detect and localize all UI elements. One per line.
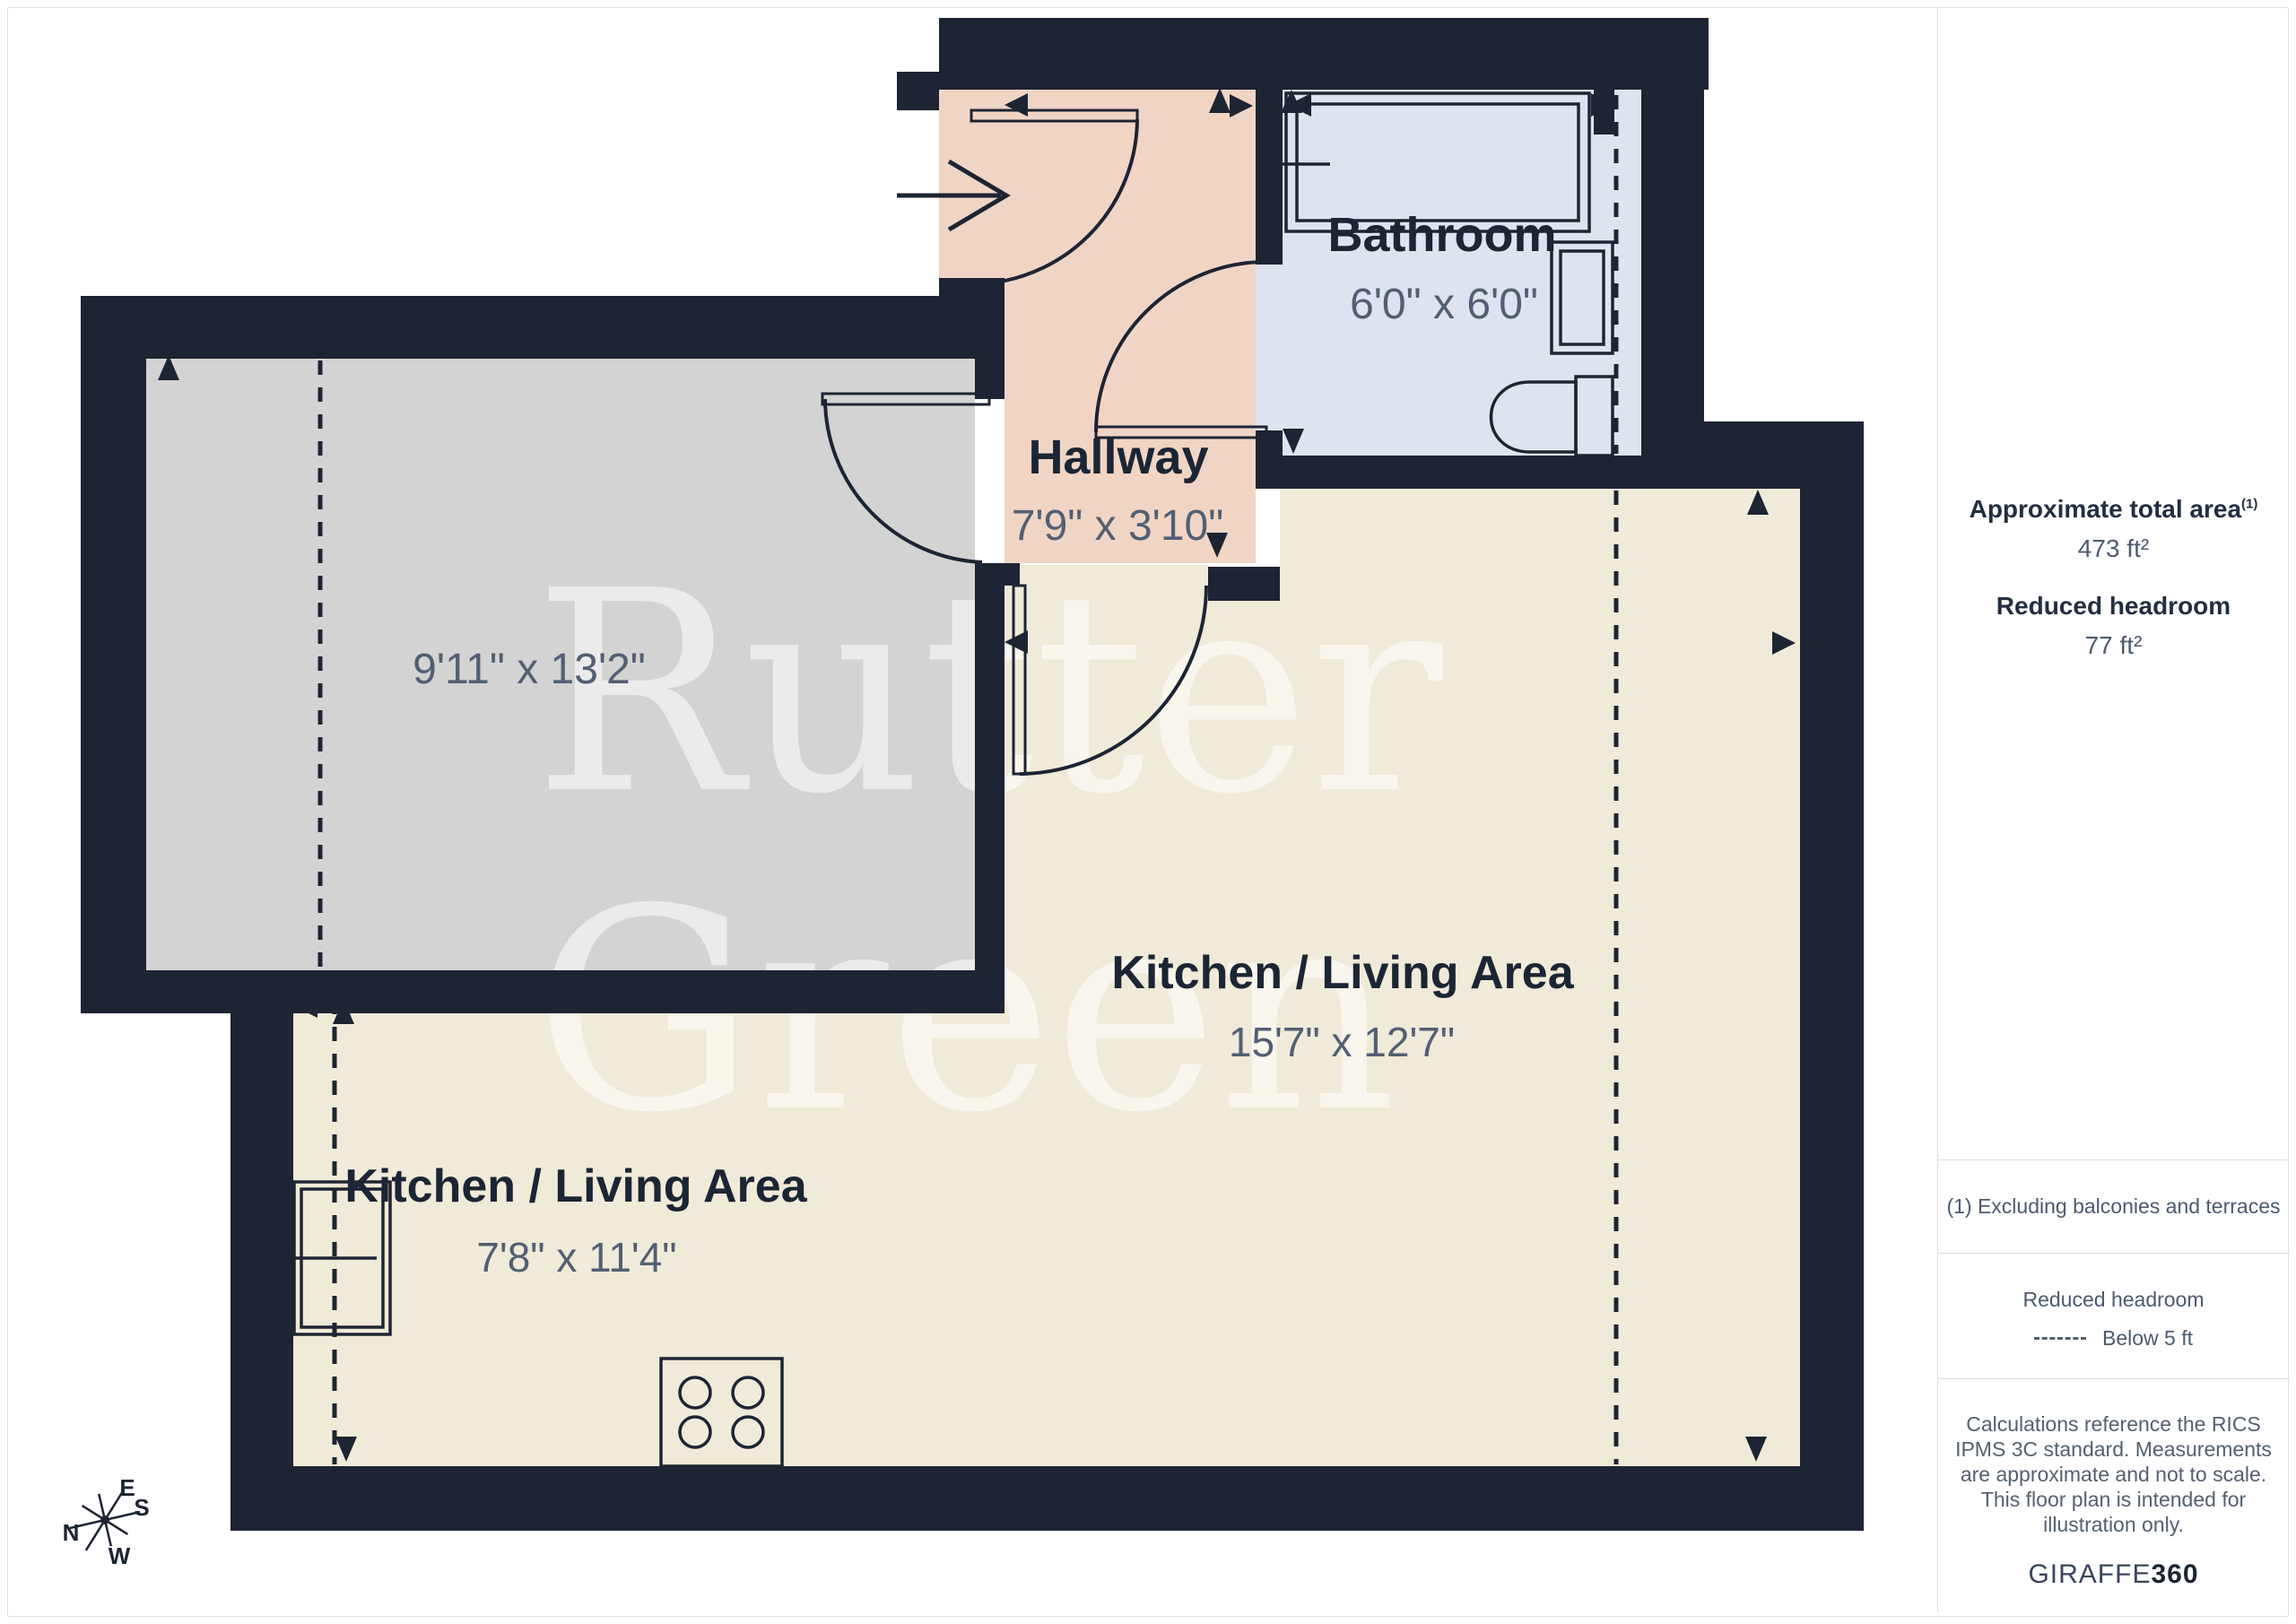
bathroom-label: Bathroom: [1328, 208, 1557, 262]
unnamed-room-dimensions: 9'11" x 13'2": [413, 646, 646, 693]
giraffe360-logo: GIRAFFE360: [1945, 1562, 2282, 1587]
disclaimer-text: Calculations reference the RICS IPMS 3C …: [1952, 1411, 2275, 1537]
compass-rose: E S N W: [63, 1474, 150, 1569]
compass-north-label: N: [63, 1519, 80, 1546]
brand-number: 360: [2151, 1559, 2198, 1589]
compass-east-label: E: [119, 1474, 135, 1501]
bathroom-door-opening: [1256, 265, 1283, 430]
disclaimer-section: Calculations reference the RICS IPMS 3C …: [1938, 1378, 2289, 1612]
reduced-headroom-label: Reduced headroom: [1938, 592, 2289, 621]
info-sidebar: Approximate total area(1) 473 ft² Reduce…: [1937, 8, 2289, 1612]
compass-south-label: S: [134, 1494, 149, 1521]
hallway-dimensions: 7'9" x 3'10": [1012, 502, 1224, 550]
kitchen-living-dimensions: 15'7" x 12'7": [1229, 1019, 1455, 1065]
bathroom-dimensions: 6'0" x 6'0": [1350, 281, 1538, 328]
brand-name: GIRAFFE: [2028, 1559, 2151, 1589]
reduced-headroom-value: 77 ft²: [1938, 631, 2289, 660]
legend-section: Reduced headroom Below 5 ft: [1938, 1253, 2289, 1378]
kitchen-living-label: Kitchen / Living Area: [344, 1160, 807, 1212]
legend-item-label: Below 5 ft: [2102, 1326, 2193, 1350]
compass-west-label: W: [109, 1542, 131, 1569]
floorplan-page: Rutter Green: [0, 0, 2296, 1624]
total-area-value: 473 ft²: [1938, 534, 2289, 563]
footnote-section: (1) Excluding balconies and terraces: [1938, 1159, 2289, 1253]
area-summary-section: Approximate total area(1) 473 ft² Reduce…: [1938, 8, 2289, 1159]
kitchen-living-label: Kitchen / Living Area: [1111, 947, 1574, 999]
bathroom-floor: [1283, 90, 1641, 456]
hallway-label: Hallway: [1028, 430, 1208, 484]
dashed-line-sample: [2034, 1337, 2086, 1340]
total-area-label-text: Approximate total area: [1970, 495, 2241, 523]
footnote-marker: (1): [2241, 497, 2257, 512]
total-area-label: Approximate total area(1): [1938, 495, 2289, 524]
kitchen-living-dimensions: 7'8" x 11'4": [476, 1234, 676, 1281]
legend-title: Reduced headroom: [1938, 1288, 2289, 1312]
